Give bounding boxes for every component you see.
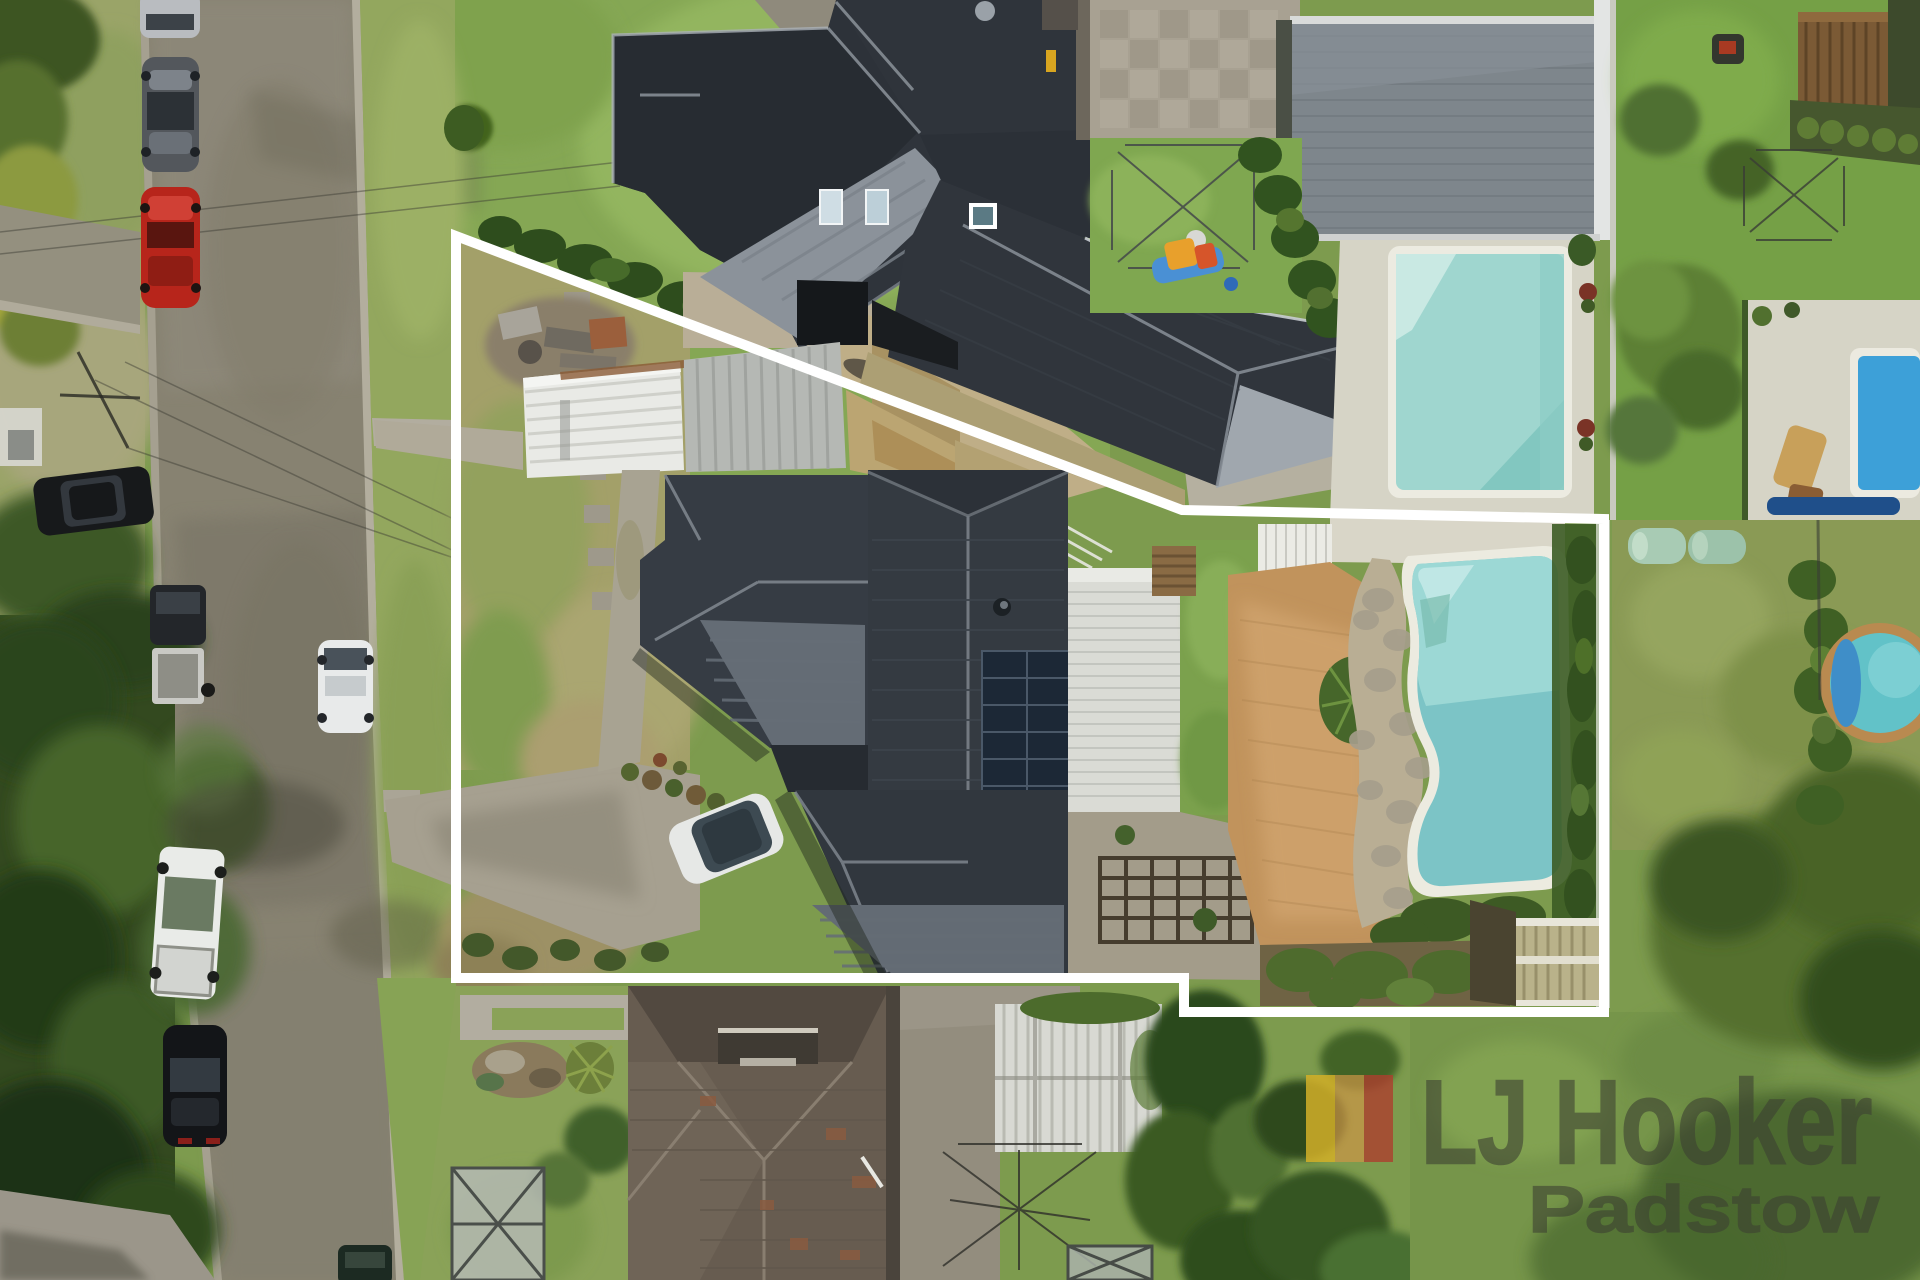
svg-text:LJ Hooker: LJ Hooker bbox=[1421, 1056, 1872, 1189]
svg-text:Padstow: Padstow bbox=[1528, 1172, 1880, 1246]
